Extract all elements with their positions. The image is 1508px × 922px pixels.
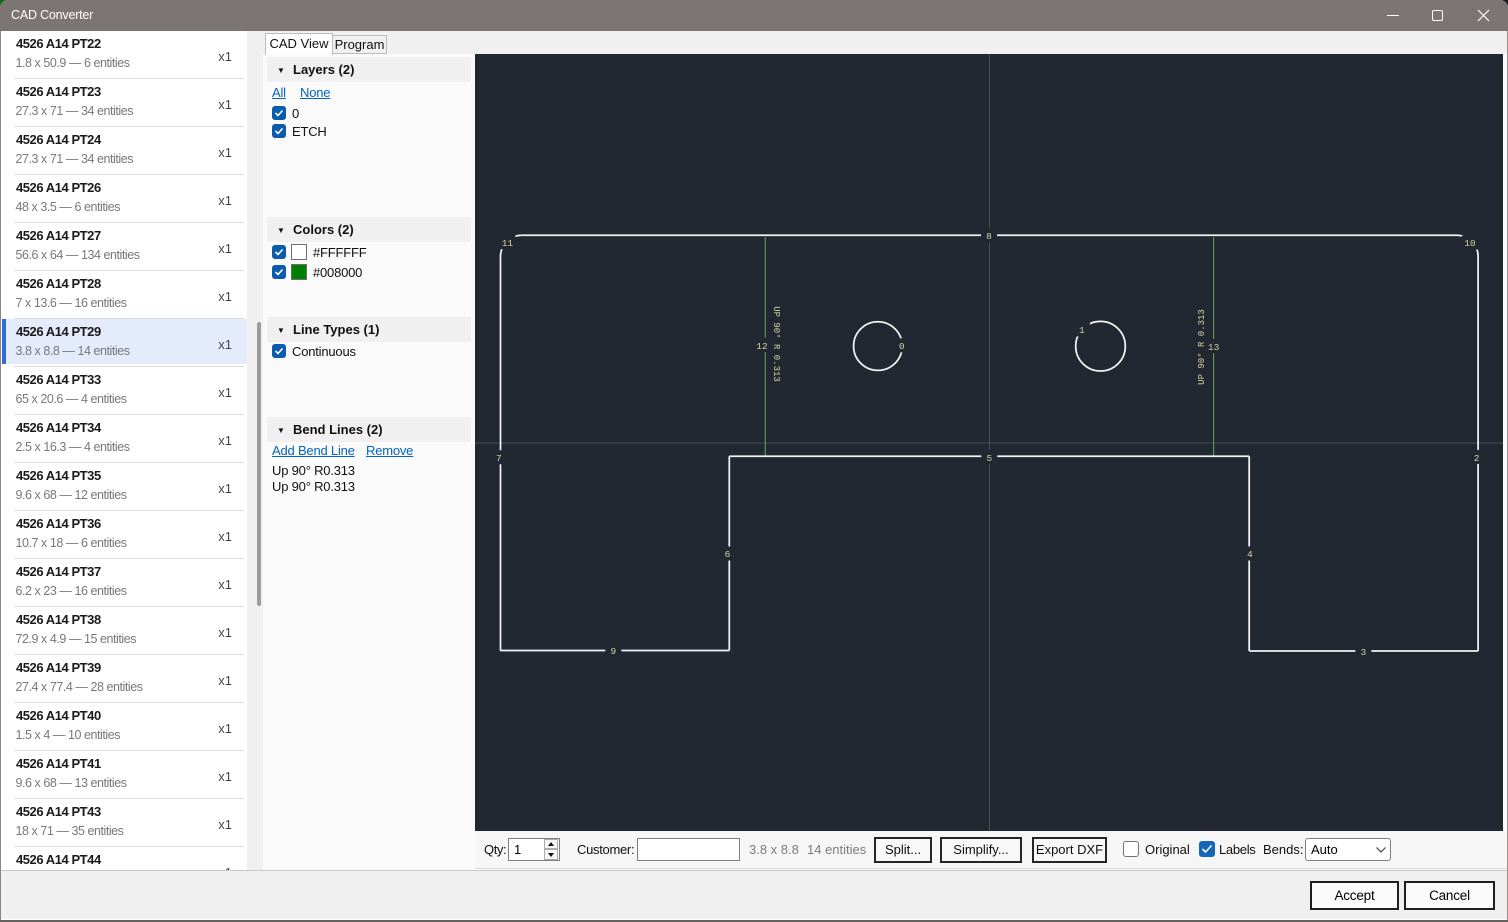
- svg-text:UP 90° R 0.313: UP 90° R 0.313: [771, 306, 781, 382]
- svg-text:8: 8: [986, 231, 992, 242]
- svg-text:7: 7: [496, 453, 502, 464]
- svg-text:6: 6: [725, 549, 731, 560]
- svg-text:0: 0: [899, 341, 905, 352]
- svg-text:UP 90° R 0.313: UP 90° R 0.313: [1197, 309, 1207, 385]
- svg-text:9: 9: [610, 646, 616, 657]
- svg-text:10: 10: [1464, 238, 1476, 249]
- svg-text:3: 3: [1360, 647, 1366, 658]
- svg-text:12: 12: [756, 341, 768, 352]
- svg-text:4: 4: [1247, 549, 1253, 560]
- svg-text:1: 1: [1079, 325, 1085, 336]
- svg-text:11: 11: [502, 238, 514, 249]
- svg-text:2: 2: [1474, 453, 1480, 464]
- svg-text:5: 5: [986, 453, 992, 464]
- svg-text:13: 13: [1208, 342, 1220, 353]
